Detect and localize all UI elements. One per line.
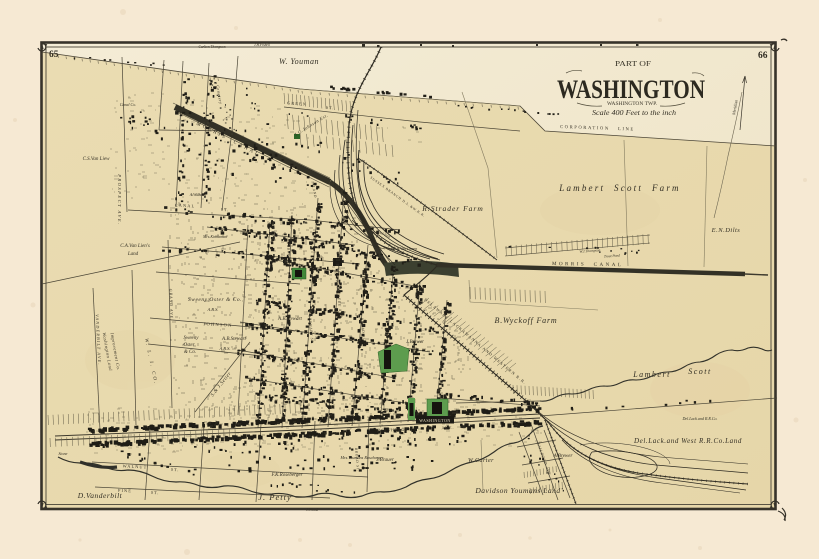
- svg-text:Lambert: Lambert: [632, 370, 671, 379]
- svg-text:Oster: Oster: [183, 343, 194, 348]
- svg-text:Scott: Scott: [688, 367, 712, 376]
- svg-text:ST.: ST.: [247, 325, 256, 330]
- svg-text:65: 65: [49, 50, 59, 60]
- svg-text:A.Wilhelm: A.Wilhelm: [189, 192, 207, 197]
- svg-text:E.N.Dilts: E.N.Dilts: [711, 227, 741, 234]
- svg-text:ST.: ST.: [221, 207, 230, 212]
- svg-text:ST.: ST.: [171, 467, 180, 472]
- svg-text:Land: Land: [127, 252, 139, 257]
- svg-text:PROSPECT AVE.: PROSPECT AVE.: [117, 173, 122, 226]
- svg-text:P.S.B.Van Doren: P.S.B.Van Doren: [390, 246, 417, 251]
- svg-text:D.Vanderbilt: D.Vanderbilt: [77, 491, 123, 500]
- svg-text:W.Carter: W.Carter: [468, 458, 494, 464]
- svg-text:C.S.Van Liew: C.S.Van Liew: [83, 157, 110, 162]
- svg-text:Carlton Thompson: Carlton Thompson: [198, 45, 225, 49]
- svg-text:& Co.: & Co.: [184, 350, 196, 355]
- svg-text:WASHINGTON: WASHINGTON: [557, 75, 705, 104]
- svg-text:Sweeny Oster & Co.: Sweeny Oster & Co.: [188, 297, 242, 303]
- svg-text:PART OF: PART OF: [615, 59, 651, 68]
- svg-text:Del.Lack.and R.R.Co.: Del.Lack.and R.R.Co.: [681, 416, 717, 421]
- svg-text:R.Strader Farm: R.Strader Farm: [421, 204, 484, 213]
- svg-text:B.Wyckoff Farm: B.Wyckoff Farm: [495, 316, 558, 325]
- svg-text:Sweeny: Sweeny: [184, 336, 200, 341]
- svg-text:C.A.Van Lien's: C.A.Van Lien's: [120, 244, 150, 249]
- svg-text:Lambert Scott Farm: Lambert Scott Farm: [558, 183, 681, 193]
- svg-text:Mrs.Youmans Roseberger: Mrs.Youmans Roseberger: [340, 455, 384, 460]
- svg-text:Canal Co.: Canal Co.: [120, 102, 136, 107]
- svg-text:Davidson Youmans Land: Davidson Youmans Land: [474, 486, 560, 495]
- svg-text:J.Wood: J.Wood: [306, 507, 319, 512]
- svg-text:Mrs.Kinnaman: Mrs.Kinnaman: [202, 234, 227, 239]
- svg-text:66: 66: [758, 51, 768, 61]
- svg-text:ST.: ST.: [151, 490, 160, 495]
- svg-text:W. Youman: W. Youman: [279, 57, 319, 66]
- svg-text:A.B.S.: A.B.S.: [218, 346, 230, 351]
- svg-text:J.Brewer: J.Brewer: [406, 340, 424, 345]
- svg-text:J. Petty: J. Petty: [258, 492, 291, 502]
- svg-text:J.H.Fishell: J.H.Fishell: [254, 43, 270, 47]
- svg-text:ST.: ST.: [326, 105, 335, 111]
- svg-text:Scale 400 Feet to the inch: Scale 400 Feet to the inch: [592, 108, 676, 117]
- svg-text:WASHINGTON: WASHINGTON: [419, 418, 451, 423]
- svg-text:Stone: Stone: [59, 451, 68, 456]
- svg-text:F.K.Roseberger: F.K.Roseberger: [270, 473, 302, 478]
- svg-text:AVE.: AVE.: [441, 425, 454, 430]
- svg-text:WASHINGTON TWP.: WASHINGTON TWP.: [607, 102, 657, 107]
- svg-text:CANAL: CANAL: [175, 202, 196, 208]
- svg-text:PINE: PINE: [118, 488, 132, 494]
- svg-text:Del.Lack.and West R.R.Co.Land: Del.Lack.and West R.R.Co.Land: [633, 437, 742, 445]
- svg-text:A.B.Stewart: A.B.Stewart: [277, 317, 302, 322]
- svg-text:A.B.Stewart: A.B.Stewart: [221, 337, 246, 342]
- svg-text:A.Brewer: A.Brewer: [553, 454, 573, 459]
- svg-text:A.B.S.: A.B.S.: [206, 307, 218, 312]
